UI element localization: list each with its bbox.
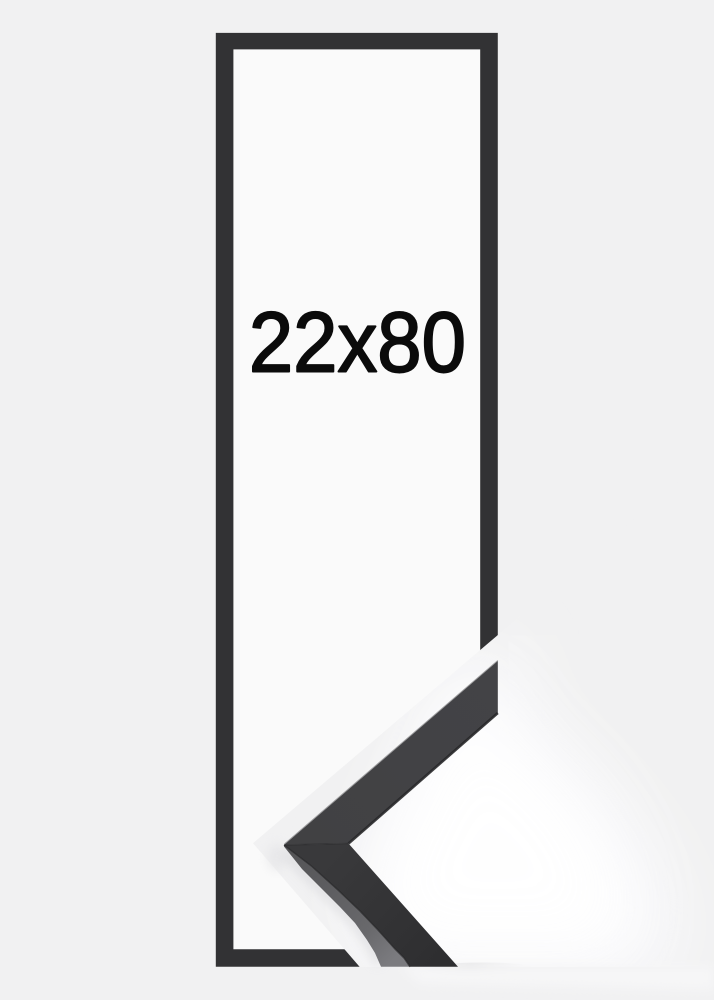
svg-text:22x80: 22x80	[249, 296, 466, 391]
